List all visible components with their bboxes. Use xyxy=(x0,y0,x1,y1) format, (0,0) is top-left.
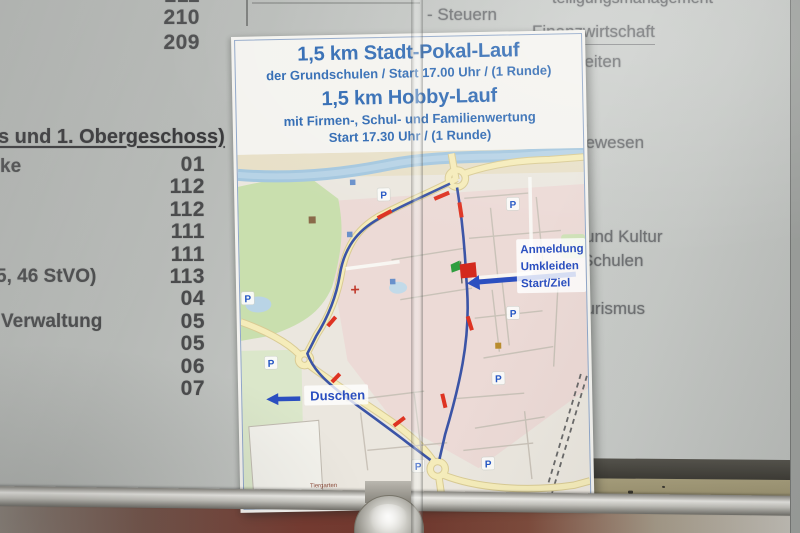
bg-text-steuern: - Steuern xyxy=(427,5,497,25)
bg-text-management: teiligungsmanagement xyxy=(552,0,713,8)
directory-stvo-line: 5, 46 StVO) xyxy=(0,266,96,288)
parking-icon: P xyxy=(510,309,517,320)
room-number: 112 xyxy=(125,176,205,198)
parking-icon: P xyxy=(268,359,275,370)
sign-top-line xyxy=(252,2,420,4)
room-number: 111 xyxy=(125,244,205,266)
bg-text-schulen: Schulen xyxy=(582,251,643,271)
room-number: 05 xyxy=(125,311,205,333)
room-number: 01 xyxy=(125,154,205,176)
anmeldung-label-box: Anmeldung Umkleiden Start/Ziel xyxy=(516,238,586,293)
umkleiden-label: Umkleiden xyxy=(521,260,579,273)
parking-icon: P xyxy=(495,374,502,385)
duschen-label: Duschen xyxy=(310,387,365,403)
parking-icon: P xyxy=(509,200,516,211)
anmeldung-label: Anmeldung xyxy=(520,243,583,256)
directory-room-numbers: 01 112 112 111 111 113 04 05 05 06 07 xyxy=(125,154,205,400)
race-map: Anmeldung Umkleiden Start/Ziel Duschen P… xyxy=(237,148,590,506)
case-frame-edge xyxy=(790,0,800,533)
room-number: 06 xyxy=(125,356,205,378)
parking-icon: P xyxy=(380,190,387,201)
start-ziel-label: Start/Ziel xyxy=(521,277,570,290)
notice-board-photo: 211 210 209 s und 1. Obergeschoss) ke 5,… xyxy=(0,0,800,533)
parking-icon: P xyxy=(485,459,492,470)
room-number: 04 xyxy=(125,288,205,310)
sign-edge-line xyxy=(246,0,248,26)
parking-icon: P xyxy=(244,294,251,305)
race-flyer: 1,5 km Stadt-Pokal-Lauf der Grundschulen… xyxy=(231,30,594,513)
room-number: 113 xyxy=(125,266,205,288)
directory-number: 210 xyxy=(120,6,200,30)
directory-partial-text: ke xyxy=(0,156,21,178)
directory-verwaltung-label: Verwaltung xyxy=(1,311,102,333)
parking-icon: P xyxy=(415,462,422,473)
tiergarten-label: Tiergarten xyxy=(310,483,337,490)
church-icon xyxy=(309,216,316,223)
room-number: 07 xyxy=(125,378,205,400)
flyer-header: 1,5 km Stadt-Pokal-Lauf der Grundschulen… xyxy=(231,37,587,148)
room-number: 05 xyxy=(125,333,205,355)
room-number: 112 xyxy=(125,199,205,221)
directory-number: 209 xyxy=(120,31,200,55)
bg-text-und-kultur: und Kultur xyxy=(585,227,663,247)
duschen-label-box: Duschen xyxy=(304,384,368,405)
room-number: 111 xyxy=(125,221,205,243)
directory-heading: s und 1. Obergeschoss) xyxy=(0,126,225,149)
